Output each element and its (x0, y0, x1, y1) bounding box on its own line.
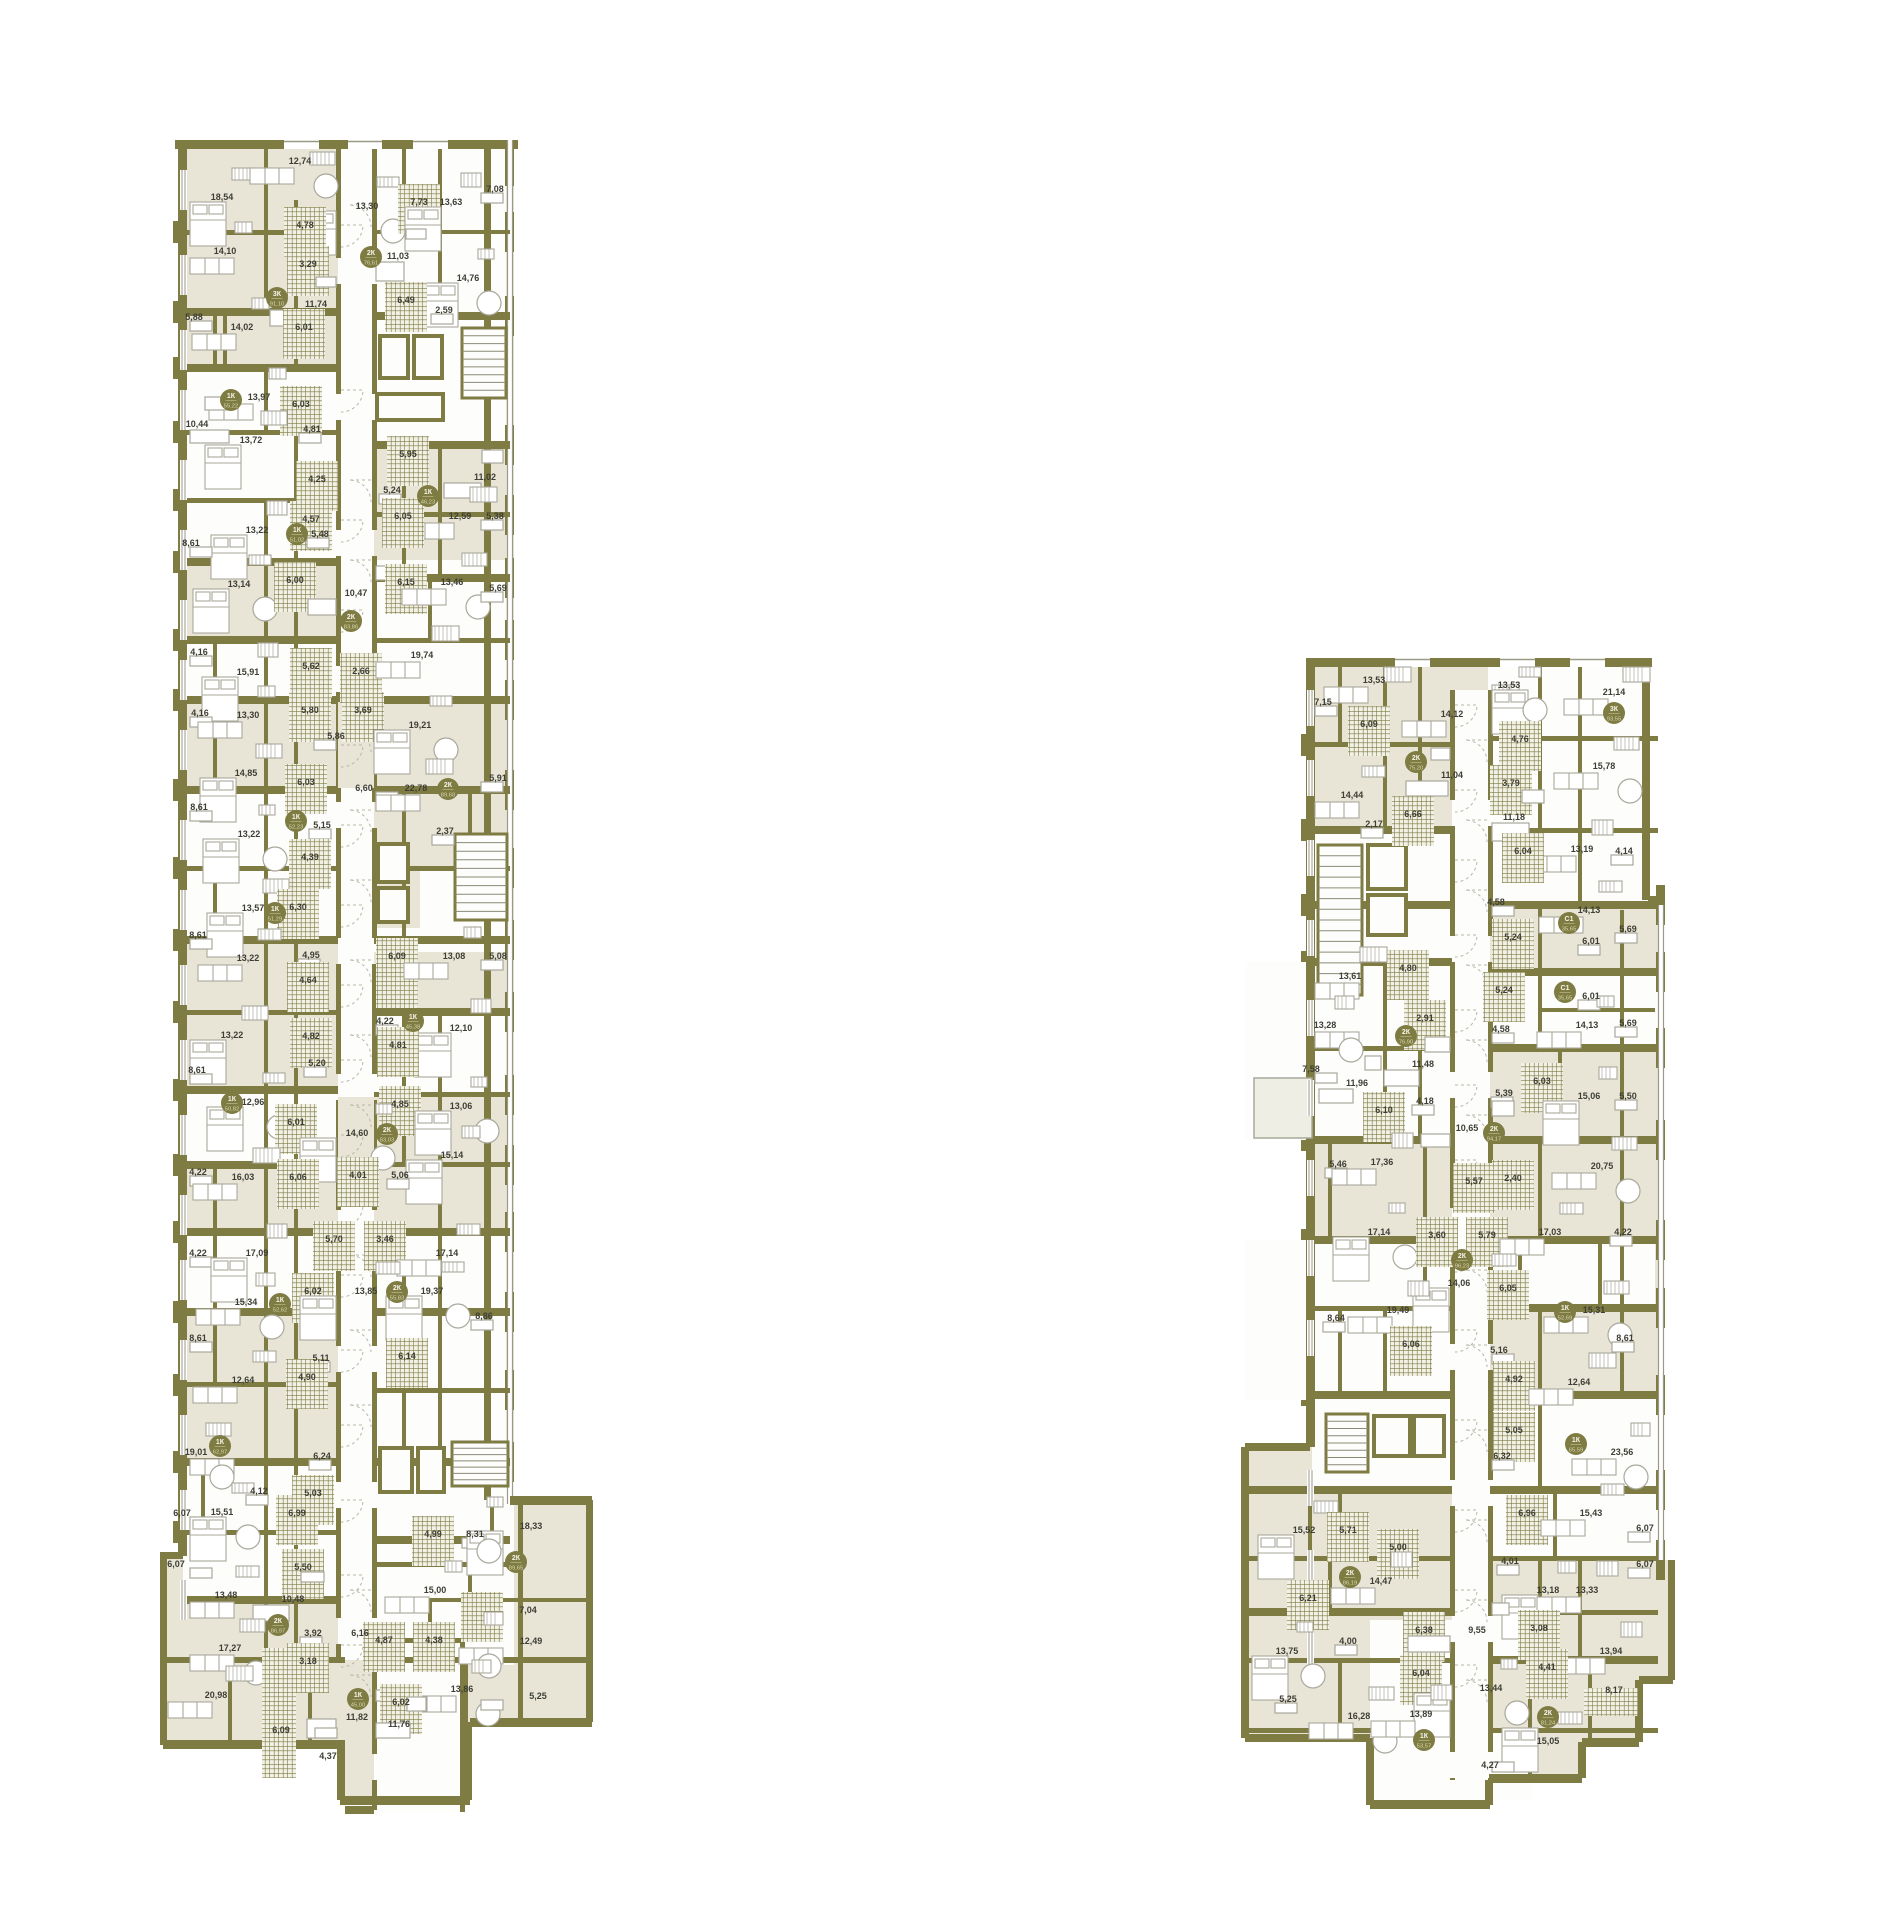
svg-text:12,74: 12,74 (289, 156, 312, 166)
svg-text:7,58: 7,58 (1302, 1064, 1320, 1074)
svg-text:13,22: 13,22 (246, 525, 269, 535)
svg-text:4,14: 4,14 (1615, 846, 1633, 856)
svg-text:С1: С1 (1561, 985, 1570, 992)
svg-text:4,81: 4,81 (303, 424, 321, 434)
svg-text:1К: 1К (216, 1439, 225, 1446)
svg-text:19,01: 19,01 (185, 1447, 208, 1457)
svg-text:6,32: 6,32 (1493, 1451, 1511, 1461)
svg-text:6,15: 6,15 (397, 577, 415, 587)
svg-text:62,97: 62,97 (213, 1450, 228, 1456)
svg-text:3,79: 3,79 (1502, 778, 1520, 788)
svg-text:13,48: 13,48 (215, 1590, 238, 1600)
svg-text:14,13: 14,13 (1576, 1020, 1599, 1030)
svg-text:2К: 2К (512, 1555, 521, 1562)
svg-text:3,69: 3,69 (354, 705, 372, 715)
svg-text:89,68: 89,68 (441, 793, 456, 799)
svg-text:93,55: 93,55 (1607, 717, 1622, 723)
svg-text:2К: 2К (367, 250, 376, 257)
svg-text:13,22: 13,22 (238, 829, 261, 839)
svg-text:5,39: 5,39 (1495, 1088, 1513, 1098)
svg-text:8,61: 8,61 (189, 930, 207, 940)
svg-text:8,61: 8,61 (188, 1065, 206, 1075)
svg-text:9,55: 9,55 (1468, 1625, 1486, 1635)
svg-text:51,02: 51,02 (290, 538, 305, 544)
svg-text:1К: 1К (276, 1297, 285, 1304)
svg-text:3,08: 3,08 (1530, 1623, 1548, 1633)
svg-text:12,59: 12,59 (449, 511, 472, 521)
svg-text:55,83: 55,83 (390, 1296, 405, 1302)
svg-text:5,05: 5,05 (1505, 1425, 1523, 1435)
svg-text:4,64: 4,64 (299, 975, 317, 985)
svg-text:11,74: 11,74 (305, 299, 327, 309)
svg-text:19,74: 19,74 (411, 650, 434, 660)
svg-text:11,04: 11,04 (1441, 770, 1463, 780)
svg-text:15,31: 15,31 (1583, 1305, 1606, 1315)
svg-text:1К: 1К (1420, 1733, 1429, 1740)
svg-text:6,96: 6,96 (1518, 1508, 1536, 1518)
svg-text:2,37: 2,37 (436, 826, 454, 836)
svg-text:1К: 1К (271, 906, 280, 913)
svg-text:2К: 2К (1412, 755, 1421, 762)
svg-text:4,99: 4,99 (424, 1529, 442, 1539)
svg-text:20,75: 20,75 (1591, 1161, 1614, 1171)
svg-text:13,22: 13,22 (237, 953, 260, 963)
svg-text:6,04: 6,04 (1412, 1668, 1430, 1678)
svg-text:12,64: 12,64 (232, 1375, 255, 1385)
svg-text:2К: 2К (1458, 1253, 1467, 1260)
svg-text:52,69: 52,69 (1558, 1316, 1573, 1322)
svg-text:16,03: 16,03 (232, 1172, 255, 1182)
svg-text:8,61: 8,61 (190, 802, 208, 812)
svg-text:8,61: 8,61 (182, 538, 200, 548)
svg-text:6,03: 6,03 (297, 777, 315, 787)
svg-text:3,60: 3,60 (1428, 1230, 1446, 1240)
svg-text:13,19: 13,19 (1571, 844, 1594, 854)
svg-text:15,78: 15,78 (1593, 761, 1616, 771)
svg-text:94,17: 94,17 (1487, 1137, 1502, 1143)
svg-text:17,14: 17,14 (436, 1248, 459, 1258)
svg-text:13,86: 13,86 (451, 1684, 474, 1694)
svg-text:2,66: 2,66 (352, 666, 370, 676)
svg-text:5,24: 5,24 (1495, 985, 1513, 995)
svg-text:1К: 1К (424, 489, 433, 496)
svg-text:13,89: 13,89 (1410, 1709, 1433, 1719)
svg-text:1К: 1К (293, 527, 302, 534)
svg-text:23,56: 23,56 (1611, 1447, 1634, 1457)
svg-text:6,21: 6,21 (1299, 1593, 1317, 1603)
svg-text:6,01: 6,01 (1582, 936, 1600, 946)
svg-text:13,28: 13,28 (1314, 1020, 1337, 1030)
svg-text:45,38: 45,38 (406, 1025, 421, 1031)
svg-text:6,01: 6,01 (295, 322, 313, 332)
svg-text:11,82: 11,82 (346, 1712, 368, 1722)
svg-text:5,24: 5,24 (383, 485, 401, 495)
svg-text:10,47: 10,47 (345, 588, 368, 598)
svg-text:4,16: 4,16 (190, 647, 208, 657)
svg-text:14,12: 14,12 (1441, 709, 1464, 719)
svg-text:4,76: 4,76 (1511, 734, 1529, 744)
svg-text:6,10: 6,10 (1375, 1105, 1393, 1115)
svg-text:15,14: 15,14 (441, 1150, 464, 1160)
svg-text:17,09: 17,09 (246, 1248, 269, 1258)
svg-text:4,22: 4,22 (189, 1167, 207, 1177)
svg-text:4,58: 4,58 (1487, 897, 1505, 907)
svg-text:5,15: 5,15 (313, 820, 331, 830)
svg-text:3К: 3К (1610, 706, 1619, 713)
svg-text:4,39: 4,39 (301, 852, 319, 862)
svg-text:13,44: 13,44 (1480, 1683, 1503, 1693)
svg-text:76,90: 76,90 (1399, 1040, 1414, 1046)
svg-text:4,58: 4,58 (1492, 1024, 1510, 1034)
svg-text:5,46: 5,46 (1329, 1159, 1347, 1169)
svg-text:18,54: 18,54 (211, 192, 234, 202)
svg-text:10,44: 10,44 (186, 419, 209, 429)
svg-text:4,95: 4,95 (302, 950, 320, 960)
svg-text:8,61: 8,61 (189, 1333, 207, 1343)
svg-text:76,61: 76,61 (364, 261, 379, 267)
svg-text:14,13: 14,13 (1578, 905, 1601, 915)
svg-text:13,63: 13,63 (440, 197, 463, 207)
svg-text:6,60: 6,60 (355, 783, 373, 793)
svg-text:4,22: 4,22 (189, 1248, 207, 1258)
svg-text:2К: 2К (383, 1127, 392, 1134)
svg-text:2К: 2К (1346, 1570, 1355, 1577)
svg-text:86,97: 86,97 (271, 1629, 286, 1635)
svg-text:83,03: 83,03 (380, 1138, 395, 1144)
svg-text:19,49: 19,49 (1387, 1305, 1410, 1315)
svg-text:35,65: 35,65 (1558, 996, 1573, 1002)
svg-text:1К: 1К (354, 1692, 363, 1699)
svg-text:5,69: 5,69 (1619, 924, 1637, 934)
svg-text:4,85: 4,85 (391, 1099, 409, 1109)
svg-text:3К: 3К (273, 291, 282, 298)
svg-text:6,07: 6,07 (1636, 1559, 1654, 1569)
svg-text:10,65: 10,65 (1456, 1123, 1479, 1133)
svg-text:13,33: 13,33 (1576, 1585, 1599, 1595)
svg-text:2,40: 2,40 (1504, 1173, 1522, 1183)
svg-text:12,64: 12,64 (1568, 1377, 1591, 1387)
svg-text:5,00: 5,00 (1389, 1542, 1407, 1552)
svg-text:22,78: 22,78 (405, 783, 428, 793)
svg-text:5,70: 5,70 (325, 1234, 343, 1244)
svg-text:6,49: 6,49 (397, 295, 415, 305)
svg-text:6,07: 6,07 (1636, 1523, 1654, 1533)
svg-text:1К: 1К (228, 1096, 237, 1103)
svg-text:5,38: 5,38 (486, 511, 504, 521)
svg-text:7,08: 7,08 (486, 184, 504, 194)
svg-text:6,09: 6,09 (1360, 719, 1378, 729)
svg-text:5,48: 5,48 (311, 529, 329, 539)
svg-text:5,57: 5,57 (1465, 1176, 1483, 1186)
svg-text:4,80: 4,80 (1399, 963, 1417, 973)
svg-text:75,20: 75,20 (1409, 766, 1424, 772)
svg-text:6,02: 6,02 (392, 1697, 410, 1707)
svg-text:4,41: 4,41 (1538, 1662, 1556, 1672)
svg-text:4,38: 4,38 (425, 1635, 443, 1645)
svg-text:1К: 1К (1561, 1305, 1570, 1312)
svg-text:1К: 1К (409, 1014, 418, 1021)
svg-text:4,87: 4,87 (375, 1635, 393, 1645)
svg-text:3,18: 3,18 (299, 1656, 317, 1666)
svg-text:15,00: 15,00 (424, 1585, 447, 1595)
svg-text:45,00: 45,00 (351, 1703, 366, 1709)
svg-text:13,94: 13,94 (1600, 1646, 1623, 1656)
svg-text:11,03: 11,03 (387, 251, 409, 261)
svg-text:5,11: 5,11 (312, 1353, 329, 1363)
svg-text:14,47: 14,47 (1370, 1576, 1393, 1586)
svg-text:4,25: 4,25 (308, 474, 326, 484)
svg-text:6,03: 6,03 (1533, 1076, 1551, 1086)
svg-text:4,81: 4,81 (389, 1040, 407, 1050)
svg-text:53,57: 53,57 (1417, 1744, 1432, 1750)
svg-text:2,59: 2,59 (435, 305, 453, 315)
svg-text:13,22: 13,22 (221, 1030, 244, 1040)
svg-text:7,15: 7,15 (1314, 697, 1332, 707)
svg-text:4,82: 4,82 (302, 1031, 320, 1041)
svg-text:6,06: 6,06 (289, 1172, 307, 1182)
svg-text:35,65: 35,65 (1562, 927, 1577, 933)
svg-text:5,08: 5,08 (489, 951, 507, 961)
svg-text:11,48: 11,48 (1412, 1059, 1434, 1069)
svg-text:5,25: 5,25 (529, 1691, 547, 1701)
svg-text:2К: 2К (1490, 1126, 1499, 1133)
svg-text:13,53: 13,53 (1363, 675, 1386, 685)
svg-text:19,21: 19,21 (409, 720, 432, 730)
svg-text:1К: 1К (1572, 1437, 1581, 1444)
svg-text:4,01: 4,01 (1501, 1556, 1519, 1566)
svg-text:6,16: 6,16 (351, 1628, 369, 1638)
svg-text:12,49: 12,49 (520, 1636, 543, 1646)
svg-text:4,12: 4,12 (250, 1486, 268, 1496)
svg-text:6,07: 6,07 (167, 1559, 185, 1569)
svg-text:13,08: 13,08 (443, 951, 466, 961)
svg-text:15,91: 15,91 (237, 667, 260, 677)
svg-text:12,96: 12,96 (242, 1097, 265, 1107)
svg-text:11,76: 11,76 (388, 1719, 410, 1729)
svg-text:4,00: 4,00 (1339, 1636, 1357, 1646)
svg-text:11,96: 11,96 (1346, 1078, 1368, 1088)
svg-text:13,14: 13,14 (228, 579, 251, 589)
svg-text:86,19: 86,19 (1343, 1581, 1358, 1587)
svg-text:4,01: 4,01 (349, 1170, 367, 1180)
svg-text:8,64: 8,64 (1327, 1313, 1345, 1323)
svg-text:4,37: 4,37 (319, 1751, 337, 1761)
svg-text:18,33: 18,33 (520, 1521, 543, 1531)
svg-text:10,48: 10,48 (282, 1594, 305, 1604)
svg-text:20,98: 20,98 (205, 1690, 228, 1700)
svg-text:1К: 1К (292, 814, 301, 821)
svg-text:96,23: 96,23 (1455, 1264, 1470, 1270)
svg-text:6,30: 6,30 (289, 902, 307, 912)
svg-text:13,72: 13,72 (240, 435, 263, 445)
svg-text:65,59: 65,59 (1569, 1448, 1584, 1454)
svg-text:4,90: 4,90 (298, 1372, 316, 1382)
svg-text:50,82: 50,82 (225, 1107, 240, 1113)
svg-text:81,24: 81,24 (1541, 1721, 1556, 1727)
svg-text:5,91: 5,91 (489, 773, 507, 783)
svg-text:6,00: 6,00 (286, 575, 304, 585)
svg-text:6,05: 6,05 (394, 511, 412, 521)
svg-text:5,86: 5,86 (327, 731, 345, 741)
svg-text:11,02: 11,02 (474, 472, 496, 482)
svg-text:6,99: 6,99 (288, 1508, 306, 1518)
svg-text:8,86: 8,86 (475, 1311, 493, 1321)
svg-text:8,17: 8,17 (1605, 1685, 1623, 1695)
svg-text:13,85: 13,85 (355, 1286, 378, 1296)
svg-text:21,14: 21,14 (1603, 687, 1626, 697)
svg-text:6,01: 6,01 (1582, 991, 1600, 1001)
svg-text:5,24: 5,24 (1504, 932, 1522, 942)
svg-text:15,43: 15,43 (1580, 1508, 1603, 1518)
svg-text:16,28: 16,28 (1348, 1711, 1371, 1721)
svg-text:6,66: 6,66 (1404, 809, 1422, 819)
svg-text:14,10: 14,10 (214, 246, 237, 256)
svg-text:6,02: 6,02 (304, 1286, 322, 1296)
svg-text:4,16: 4,16 (191, 708, 209, 718)
svg-text:13,57: 13,57 (242, 903, 265, 913)
svg-text:19,37: 19,37 (421, 1286, 444, 1296)
svg-text:14,02: 14,02 (231, 322, 254, 332)
svg-text:6,09: 6,09 (272, 1725, 290, 1735)
svg-text:46,23: 46,23 (421, 500, 436, 506)
svg-text:17,14: 17,14 (1368, 1227, 1391, 1237)
svg-text:1К: 1К (227, 393, 236, 400)
svg-text:4,18: 4,18 (1416, 1096, 1434, 1106)
svg-text:2К: 2К (393, 1285, 402, 1292)
svg-text:5,62: 5,62 (302, 661, 320, 671)
svg-text:17,36: 17,36 (1371, 1157, 1394, 1167)
svg-text:5,20: 5,20 (308, 1058, 326, 1068)
svg-text:6,04: 6,04 (1514, 846, 1532, 856)
svg-text:3,46: 3,46 (376, 1234, 394, 1244)
svg-text:2К: 2К (1544, 1710, 1553, 1717)
svg-text:14,85: 14,85 (235, 768, 258, 778)
svg-text:2К: 2К (444, 782, 453, 789)
svg-text:С1: С1 (1565, 916, 1574, 923)
svg-text:13,06: 13,06 (450, 1101, 473, 1111)
svg-text:5,69: 5,69 (1619, 1018, 1637, 1028)
svg-text:3,29: 3,29 (299, 259, 317, 269)
svg-text:5,88: 5,88 (185, 312, 203, 322)
svg-text:6,09: 6,09 (388, 951, 406, 961)
svg-text:15,06: 15,06 (1578, 1091, 1601, 1101)
svg-text:91,10: 91,10 (270, 302, 285, 308)
svg-text:15,52: 15,52 (1293, 1525, 1316, 1535)
svg-text:2,17: 2,17 (1365, 819, 1383, 829)
svg-text:11,18: 11,18 (1503, 812, 1525, 822)
svg-text:15,05: 15,05 (1537, 1736, 1560, 1746)
svg-text:17,03: 17,03 (1539, 1227, 1562, 1237)
svg-text:6,03: 6,03 (292, 399, 310, 409)
svg-text:6,05: 6,05 (1499, 1283, 1517, 1293)
svg-text:13,97: 13,97 (248, 392, 271, 402)
svg-text:5,79: 5,79 (1478, 1230, 1496, 1240)
svg-text:5,03: 5,03 (304, 1488, 322, 1498)
svg-text:13,30: 13,30 (237, 710, 260, 720)
svg-text:14,60: 14,60 (346, 1128, 369, 1138)
svg-text:13,61: 13,61 (1339, 971, 1362, 981)
svg-text:5,80: 5,80 (301, 705, 319, 715)
svg-text:2К: 2К (347, 614, 356, 621)
svg-text:6,24: 6,24 (313, 1451, 331, 1461)
svg-text:2К: 2К (274, 1618, 283, 1625)
svg-text:52,23: 52,23 (289, 825, 304, 831)
svg-text:5,06: 5,06 (391, 1170, 409, 1180)
svg-text:4,22: 4,22 (1614, 1227, 1632, 1237)
svg-text:6,06: 6,06 (1402, 1339, 1420, 1349)
svg-text:13,30: 13,30 (356, 201, 379, 211)
svg-text:83,86: 83,86 (344, 625, 359, 631)
svg-text:6,38: 6,38 (1415, 1625, 1433, 1635)
svg-text:14,44: 14,44 (1341, 790, 1364, 800)
svg-text:4,92: 4,92 (1505, 1374, 1523, 1384)
svg-text:4,78: 4,78 (296, 220, 314, 230)
svg-text:5,50: 5,50 (294, 1562, 312, 1572)
svg-text:6,01: 6,01 (287, 1117, 305, 1127)
svg-text:13,75: 13,75 (1276, 1646, 1299, 1656)
svg-text:15,34: 15,34 (235, 1297, 258, 1307)
svg-text:13,18: 13,18 (1537, 1585, 1560, 1595)
svg-text:5,50: 5,50 (1619, 1091, 1637, 1101)
svg-text:13,53: 13,53 (1498, 680, 1521, 690)
svg-text:4,22: 4,22 (376, 1016, 394, 1026)
svg-text:6,07: 6,07 (173, 1508, 191, 1518)
svg-text:3,92: 3,92 (304, 1628, 322, 1638)
svg-text:5,69: 5,69 (489, 583, 507, 593)
svg-text:4,57: 4,57 (302, 514, 320, 524)
svg-text:5,16: 5,16 (1490, 1345, 1508, 1355)
svg-text:13,46: 13,46 (441, 577, 464, 587)
svg-text:2,91: 2,91 (1416, 1013, 1434, 1023)
svg-text:6,14: 6,14 (398, 1351, 416, 1361)
svg-text:52,62: 52,62 (273, 1308, 288, 1314)
svg-text:4,27: 4,27 (1481, 1760, 1499, 1770)
svg-text:5,71: 5,71 (1339, 1525, 1357, 1535)
svg-text:5,25: 5,25 (1279, 1694, 1297, 1704)
svg-text:7,04: 7,04 (519, 1605, 537, 1615)
svg-text:55,22: 55,22 (224, 404, 239, 410)
svg-text:15,51: 15,51 (211, 1507, 234, 1517)
svg-text:2К: 2К (1402, 1029, 1411, 1036)
svg-text:12,10: 12,10 (450, 1023, 473, 1033)
svg-text:7,73: 7,73 (410, 197, 428, 207)
svg-text:14,76: 14,76 (457, 273, 480, 283)
svg-text:5,95: 5,95 (399, 449, 417, 459)
svg-text:14,06: 14,06 (1448, 1278, 1471, 1288)
svg-text:8,61: 8,61 (1616, 1333, 1634, 1343)
svg-text:17,27: 17,27 (219, 1643, 242, 1653)
svg-text:8,31: 8,31 (466, 1529, 484, 1539)
svg-text:51,29: 51,29 (268, 917, 283, 923)
svg-text:89,65: 89,65 (509, 1566, 524, 1572)
